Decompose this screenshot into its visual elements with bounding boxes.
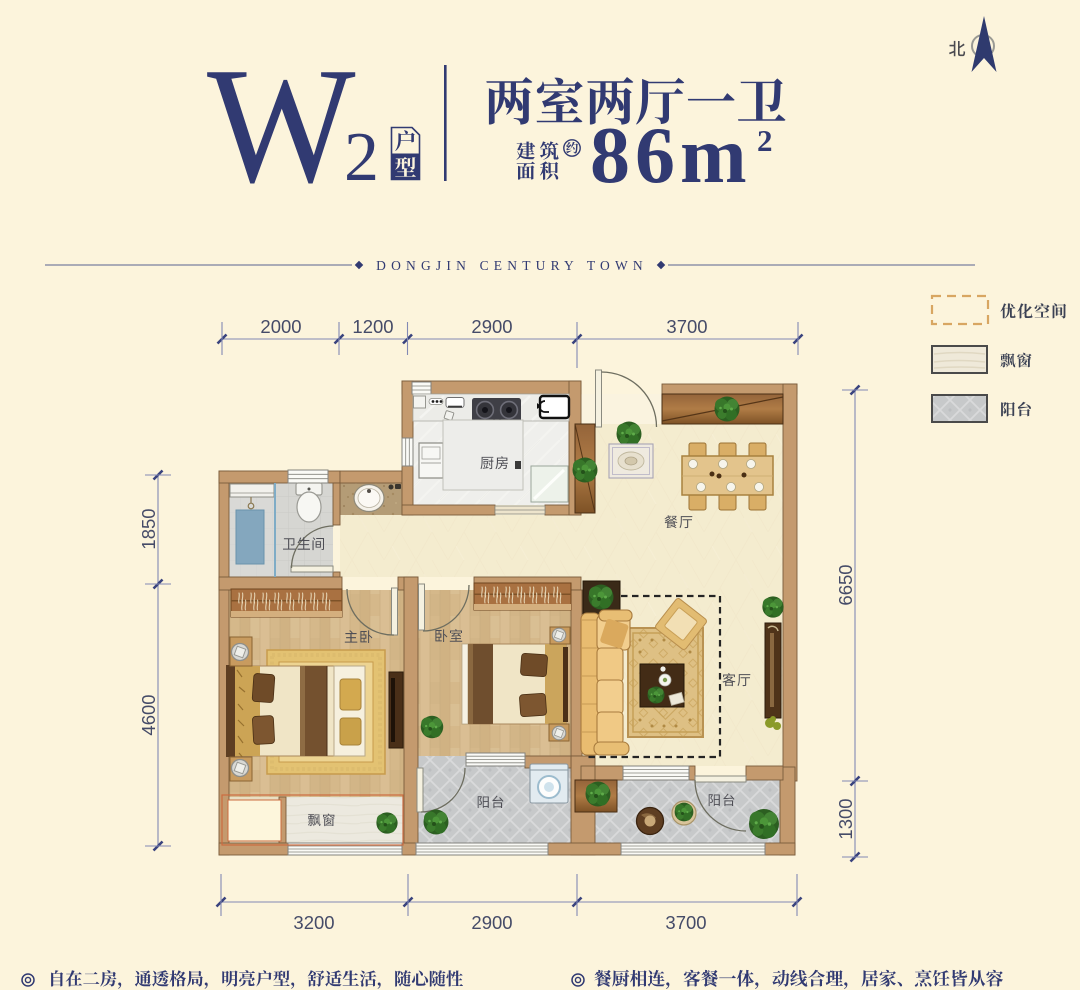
svg-text:3700: 3700: [665, 912, 706, 933]
svg-text:1200: 1200: [352, 316, 393, 337]
svg-text:3700: 3700: [666, 316, 707, 337]
svg-text:DONGJIN CENTURY TOWN: DONGJIN CENTURY TOWN: [376, 258, 648, 273]
svg-text:1300: 1300: [835, 798, 856, 839]
svg-text:3200: 3200: [293, 912, 334, 933]
svg-text:2000: 2000: [260, 316, 301, 337]
svg-text:86m: 86m: [590, 112, 752, 200]
svg-text:6650: 6650: [835, 564, 856, 605]
svg-text:2: 2: [344, 119, 379, 196]
svg-text:2: 2: [757, 123, 773, 158]
svg-text:2900: 2900: [471, 316, 512, 337]
svg-text:W: W: [207, 33, 356, 217]
svg-text:4600: 4600: [138, 694, 159, 735]
svg-text:2900: 2900: [471, 912, 512, 933]
svg-text:1850: 1850: [138, 508, 159, 549]
